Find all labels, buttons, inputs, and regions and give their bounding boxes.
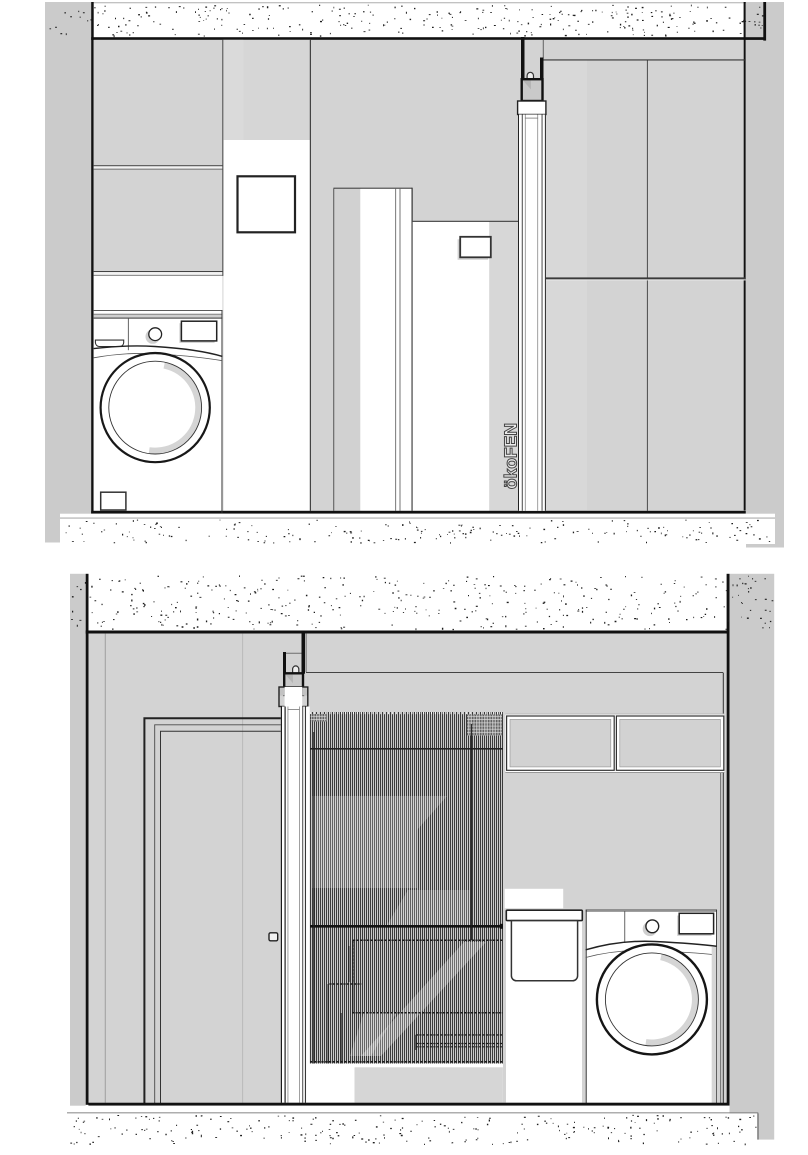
svg-text:ökoFEN: ökoFEN: [501, 423, 521, 489]
